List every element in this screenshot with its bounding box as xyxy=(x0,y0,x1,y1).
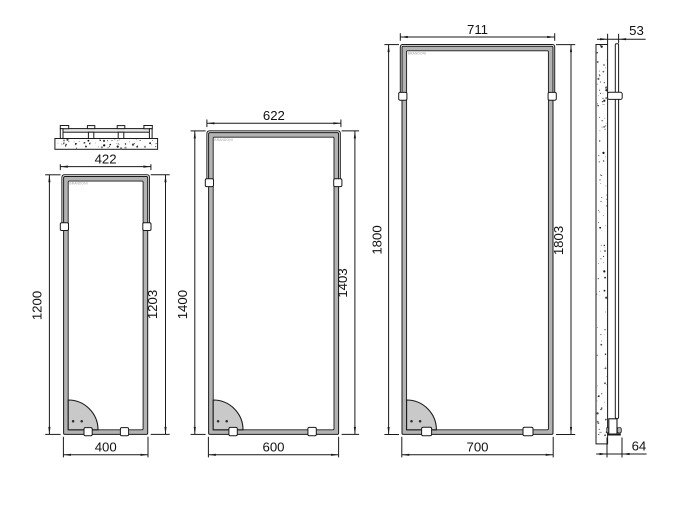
svg-text:BRANDONI: BRANDONI xyxy=(408,51,426,55)
svg-text:700: 700 xyxy=(466,440,488,455)
svg-text:53: 53 xyxy=(629,23,644,38)
svg-text:600: 600 xyxy=(262,440,284,455)
svg-text:422: 422 xyxy=(95,151,117,166)
svg-text:622: 622 xyxy=(263,108,285,123)
svg-text:BRANDONI: BRANDONI xyxy=(214,138,232,142)
svg-text:64: 64 xyxy=(632,439,647,454)
svg-text:1400: 1400 xyxy=(175,290,190,319)
svg-text:711: 711 xyxy=(467,22,488,37)
svg-text:1200: 1200 xyxy=(30,291,45,320)
svg-text:1403: 1403 xyxy=(335,268,350,297)
svg-text:1803: 1803 xyxy=(551,226,566,255)
svg-text:BRANDONI: BRANDONI xyxy=(69,182,87,186)
svg-text:400: 400 xyxy=(95,440,117,455)
svg-text:1800: 1800 xyxy=(369,225,384,254)
svg-text:1203: 1203 xyxy=(145,290,160,319)
